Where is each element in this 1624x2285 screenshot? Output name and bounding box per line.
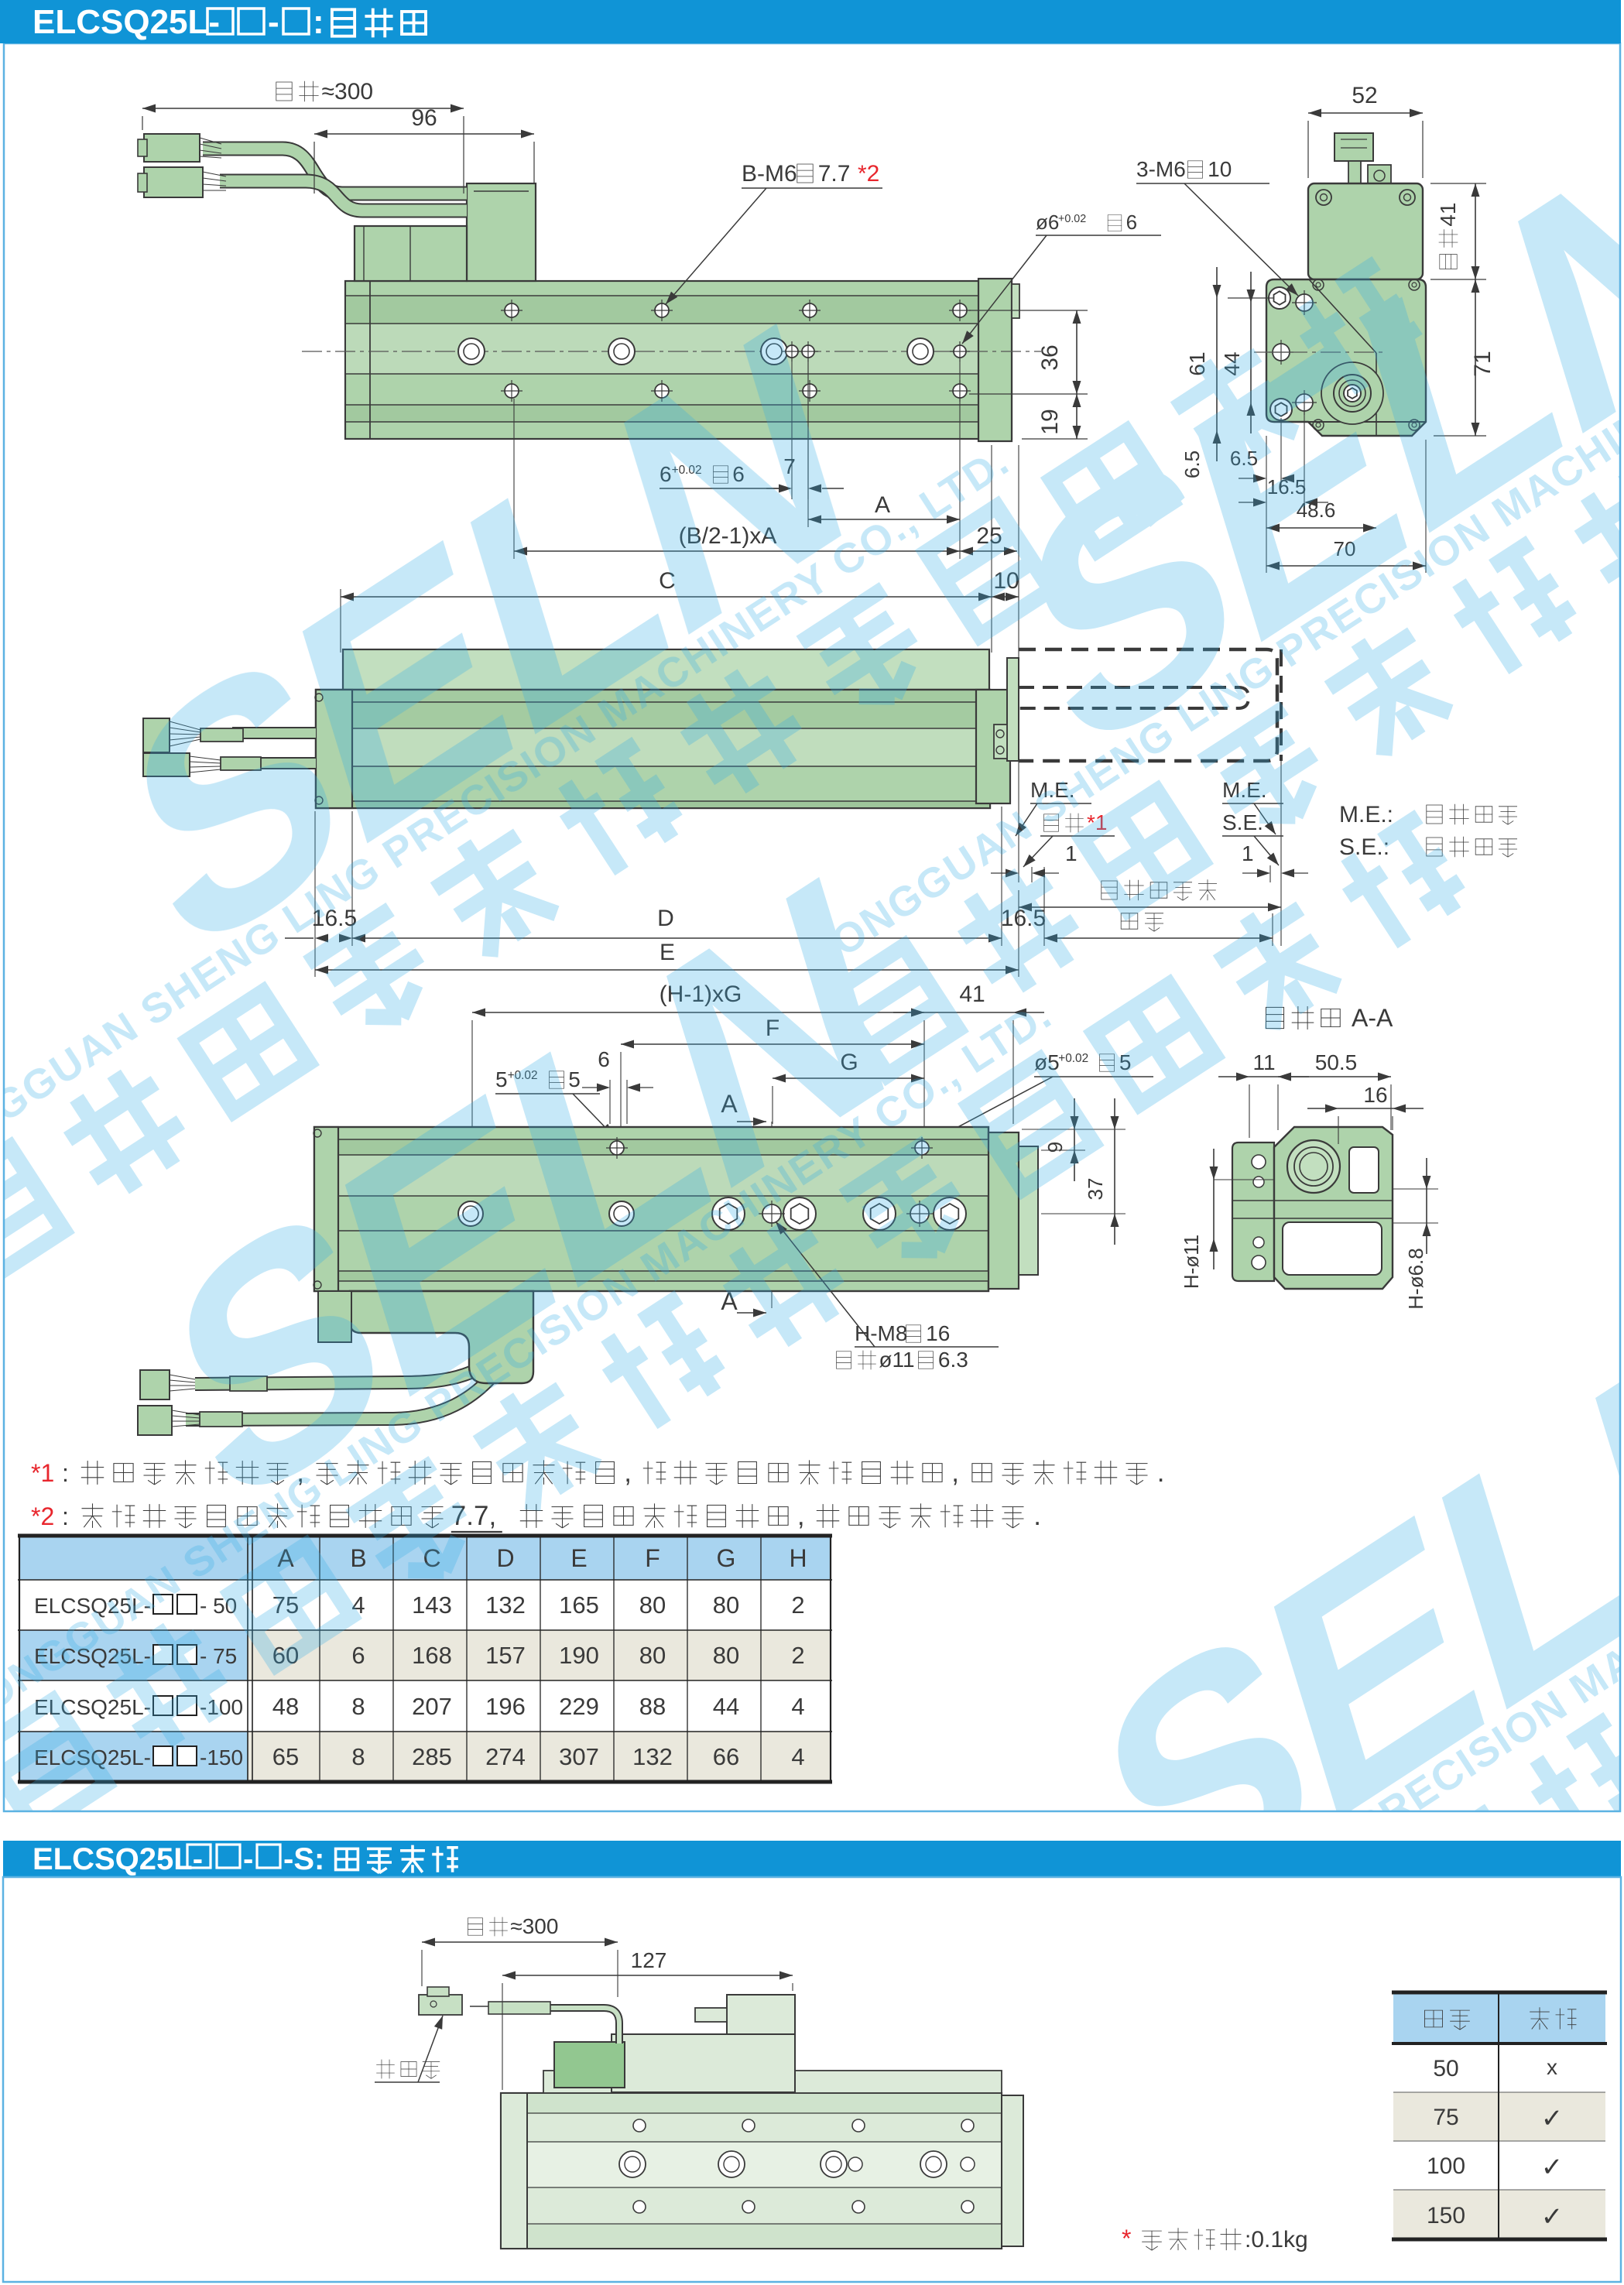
svg-text:37: 37 bbox=[1084, 1178, 1107, 1201]
svg-text:168: 168 bbox=[412, 1642, 452, 1669]
svg-text:165: 165 bbox=[559, 1591, 599, 1619]
svg-text:1: 1 bbox=[1242, 841, 1254, 865]
svg-text:-S:: -S: bbox=[283, 1842, 324, 1876]
svg-text::: : bbox=[313, 3, 324, 41]
svg-text:H: H bbox=[789, 1544, 807, 1572]
svg-text:127: 127 bbox=[631, 1948, 667, 1972]
svg-text:1: 1 bbox=[1065, 841, 1078, 865]
svg-text:+0.02: +0.02 bbox=[1058, 1052, 1088, 1065]
svg-text:143: 143 bbox=[412, 1591, 452, 1619]
svg-text:S.E.: S.E. bbox=[1222, 810, 1263, 834]
svg-text:B: B bbox=[350, 1544, 366, 1572]
svg-text:.: . bbox=[1033, 1501, 1041, 1531]
svg-text:11: 11 bbox=[1252, 1050, 1275, 1074]
svg-text:8: 8 bbox=[351, 1743, 365, 1770]
svg-text:✓: ✓ bbox=[1541, 2202, 1564, 2232]
svg-text:52: 52 bbox=[1352, 83, 1377, 108]
svg-text:16: 16 bbox=[1363, 1083, 1387, 1107]
svg-text:F: F bbox=[645, 1544, 660, 1572]
svg-text:D: D bbox=[496, 1544, 514, 1572]
svg-text:ELCSQ25L-: ELCSQ25L- bbox=[33, 3, 220, 41]
svg-text:H-ø6.8: H-ø6.8 bbox=[1404, 1248, 1427, 1309]
svg-text:✓: ✓ bbox=[1541, 2104, 1564, 2133]
svg-text:-: - bbox=[243, 1842, 253, 1876]
svg-text:,: , bbox=[797, 1501, 805, 1531]
svg-text:307: 307 bbox=[559, 1743, 599, 1770]
svg-text:80: 80 bbox=[639, 1591, 666, 1619]
svg-text:H-M8: H-M8 bbox=[855, 1321, 907, 1345]
svg-text:80: 80 bbox=[639, 1642, 666, 1669]
svg-text:G: G bbox=[717, 1544, 736, 1572]
svg-text:-150: -150 bbox=[200, 1745, 243, 1769]
svg-text:2: 2 bbox=[791, 1642, 804, 1669]
svg-text:44: 44 bbox=[713, 1693, 739, 1720]
svg-text:16: 16 bbox=[926, 1321, 950, 1345]
svg-text:132: 132 bbox=[485, 1591, 526, 1619]
svg-text:,: , bbox=[624, 1458, 632, 1488]
svg-text:80: 80 bbox=[713, 1642, 739, 1669]
svg-text:196: 196 bbox=[485, 1693, 526, 1720]
svg-text:274: 274 bbox=[485, 1743, 526, 1770]
svg-text:80: 80 bbox=[713, 1591, 739, 1619]
svg-text:229: 229 bbox=[559, 1693, 599, 1720]
svg-text:66: 66 bbox=[713, 1743, 739, 1770]
svg-text:41: 41 bbox=[959, 981, 985, 1007]
svg-text:6: 6 bbox=[351, 1642, 365, 1669]
svg-text:10: 10 bbox=[1208, 157, 1232, 181]
svg-text:,: , bbox=[951, 1458, 959, 1488]
svg-text:-: - bbox=[268, 3, 279, 41]
svg-text:50: 50 bbox=[1433, 2056, 1458, 2081]
svg-text:48: 48 bbox=[272, 1693, 299, 1720]
svg-text:+0.02: +0.02 bbox=[1058, 213, 1086, 225]
svg-text:x: x bbox=[1547, 2055, 1557, 2079]
svg-text:H-ø11: H-ø11 bbox=[1180, 1235, 1203, 1289]
svg-text:4: 4 bbox=[791, 1693, 804, 1720]
svg-text:B-M6: B-M6 bbox=[742, 161, 797, 187]
svg-text:96: 96 bbox=[411, 105, 437, 131]
svg-text:A-A: A-A bbox=[1352, 1004, 1393, 1032]
svg-text:4: 4 bbox=[791, 1743, 804, 1770]
svg-text:157: 157 bbox=[485, 1642, 526, 1669]
svg-text:6.3: 6.3 bbox=[938, 1348, 968, 1372]
svg-text:ELCSQ25L-: ELCSQ25L- bbox=[33, 1842, 203, 1876]
svg-text:36: 36 bbox=[1037, 344, 1063, 370]
svg-text:65: 65 bbox=[272, 1743, 299, 1770]
svg-text:50.5: 50.5 bbox=[1315, 1050, 1358, 1074]
svg-text:M.E.:: M.E.: bbox=[1339, 802, 1393, 827]
svg-text:150: 150 bbox=[1427, 2203, 1465, 2228]
svg-text:2: 2 bbox=[791, 1591, 804, 1619]
svg-text:✓: ✓ bbox=[1541, 2153, 1564, 2182]
svg-text:E: E bbox=[570, 1544, 587, 1572]
svg-text:132: 132 bbox=[632, 1743, 673, 1770]
svg-text:285: 285 bbox=[412, 1743, 452, 1770]
svg-text:88: 88 bbox=[639, 1693, 666, 1720]
svg-text:100: 100 bbox=[1427, 2153, 1465, 2179]
svg-text:6: 6 bbox=[1126, 211, 1137, 234]
svg-text:ø6: ø6 bbox=[1036, 211, 1059, 234]
svg-text:3-M6: 3-M6 bbox=[1136, 157, 1186, 181]
svg-text:75: 75 bbox=[1433, 2105, 1458, 2130]
svg-text:- 75: - 75 bbox=[200, 1644, 237, 1668]
svg-text:*2: *2 bbox=[31, 1502, 54, 1530]
svg-text:*2: *2 bbox=[858, 161, 879, 187]
svg-text:9: 9 bbox=[1043, 1142, 1067, 1153]
svg-text::0.1kg: :0.1kg bbox=[1245, 2227, 1308, 2252]
svg-text::: : bbox=[62, 1502, 69, 1530]
svg-text:7.7: 7.7 bbox=[818, 161, 851, 187]
svg-text:*: * bbox=[1122, 2225, 1131, 2252]
svg-text:*1: *1 bbox=[31, 1459, 54, 1487]
svg-text:ø11: ø11 bbox=[879, 1348, 914, 1372]
svg-text::: : bbox=[62, 1459, 69, 1487]
svg-text:19: 19 bbox=[1037, 409, 1063, 434]
svg-text:8: 8 bbox=[351, 1693, 365, 1720]
svg-text:.: . bbox=[1157, 1458, 1165, 1488]
svg-text:≈300: ≈300 bbox=[322, 79, 374, 104]
svg-text:207: 207 bbox=[412, 1693, 452, 1720]
svg-text:≈300: ≈300 bbox=[510, 1914, 558, 1938]
svg-text:190: 190 bbox=[559, 1642, 599, 1669]
